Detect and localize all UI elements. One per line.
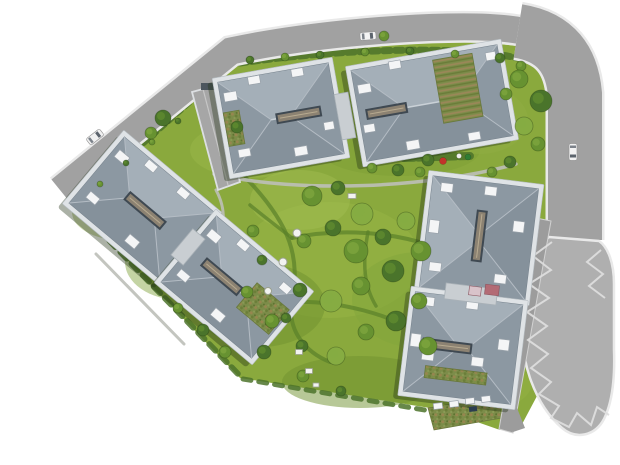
- tree-highlight: [323, 293, 334, 304]
- tree-highlight: [243, 288, 249, 294]
- tree-highlight: [295, 285, 302, 292]
- entrance-canopy: [468, 286, 481, 296]
- tree: [351, 203, 373, 225]
- tree: [197, 324, 209, 336]
- roof-terrace-box: [494, 274, 507, 284]
- ground-terrace: [465, 397, 475, 404]
- tree-highlight: [354, 279, 363, 288]
- car-windshield: [570, 155, 576, 158]
- ground-terrace: [433, 402, 443, 409]
- tree-highlight: [368, 164, 373, 169]
- tree: [415, 167, 425, 177]
- ground-terrace: [449, 400, 459, 407]
- roof-terrace-box: [484, 186, 497, 196]
- tree-highlight: [362, 49, 366, 53]
- tree-highlight: [247, 57, 251, 61]
- tree: [123, 160, 129, 166]
- roof-terrace-box: [471, 357, 484, 367]
- tree: [367, 163, 377, 173]
- tree-highlight: [124, 161, 127, 164]
- tree: [241, 286, 253, 298]
- tree-highlight: [512, 72, 521, 81]
- tree-highlight: [496, 54, 501, 59]
- tree-highlight: [533, 139, 540, 146]
- building-A1: [212, 57, 350, 179]
- roof-terrace-box: [388, 60, 401, 70]
- roof-terrace-box: [429, 262, 442, 272]
- accent-dot: [440, 158, 447, 165]
- tree: [392, 164, 404, 176]
- tree: [531, 137, 545, 151]
- tree-highlight: [305, 189, 315, 199]
- tree-highlight: [424, 156, 430, 162]
- tree: [336, 386, 346, 396]
- garden-furniture: [296, 350, 303, 355]
- tree: [145, 127, 157, 139]
- tree-highlight: [517, 119, 526, 128]
- tree-highlight: [221, 348, 227, 354]
- tree-highlight: [282, 54, 286, 58]
- site-plan-image: [0, 0, 620, 465]
- tree: [173, 303, 183, 313]
- tree-highlight: [394, 166, 400, 172]
- tree-highlight: [267, 316, 274, 323]
- site-plan-canvas: [0, 0, 620, 465]
- tree-highlight: [452, 51, 456, 55]
- tree-highlight: [416, 168, 421, 173]
- roof-terrace-box: [440, 183, 453, 193]
- tree: [515, 117, 533, 135]
- car-rear-window: [362, 33, 365, 39]
- tree: [361, 48, 369, 56]
- tree-highlight: [380, 32, 385, 37]
- tree: [325, 220, 341, 236]
- tree: [344, 239, 368, 263]
- building-C1: [414, 170, 544, 305]
- garden-furniture: [313, 383, 319, 387]
- tree-highlight: [147, 129, 153, 135]
- roof-terrace-box: [513, 221, 525, 233]
- car: [569, 144, 577, 161]
- tree-highlight: [317, 52, 321, 56]
- roof-terrace-box: [357, 83, 371, 94]
- tree-highlight: [299, 372, 305, 378]
- roof-terrace-box: [247, 75, 260, 85]
- tree-highlight: [407, 48, 411, 52]
- tree: [516, 61, 526, 71]
- tree: [451, 50, 459, 58]
- tree: [495, 53, 505, 63]
- tree: [406, 47, 414, 55]
- patio-umbrella: [293, 229, 301, 237]
- tree: [320, 290, 342, 312]
- tree-highlight: [354, 206, 365, 217]
- tree: [358, 324, 374, 340]
- tree-highlight: [502, 90, 508, 96]
- tree: [397, 212, 415, 230]
- tree-highlight: [533, 93, 544, 104]
- roof-terrace-box: [468, 131, 481, 141]
- tree: [149, 139, 155, 145]
- tree: [530, 90, 552, 112]
- tree-highlight: [414, 244, 424, 254]
- patio-umbrella: [265, 288, 272, 295]
- tree: [281, 53, 289, 61]
- tree: [422, 154, 434, 166]
- tree: [231, 121, 243, 133]
- tree: [327, 347, 345, 365]
- tree-highlight: [413, 295, 421, 303]
- tree-highlight: [176, 119, 179, 122]
- tree-highlight: [199, 326, 205, 332]
- tree: [331, 181, 345, 195]
- tree-highlight: [259, 347, 266, 354]
- tree: [247, 225, 259, 237]
- car-windshield: [370, 33, 374, 39]
- roof-terrace-box: [223, 91, 237, 102]
- tree: [219, 346, 231, 358]
- tree: [487, 167, 497, 177]
- tree-highlight: [174, 304, 179, 309]
- tree-highlight: [157, 112, 165, 120]
- tree: [375, 229, 391, 245]
- tree-highlight: [488, 168, 493, 173]
- tree-highlight: [298, 342, 304, 348]
- tree: [293, 283, 307, 297]
- car-rear-window: [570, 146, 576, 149]
- roof-terrace-box: [363, 123, 375, 133]
- tree: [97, 181, 103, 187]
- tree: [175, 118, 181, 124]
- tree: [281, 313, 291, 323]
- tree: [246, 56, 254, 64]
- tree-highlight: [517, 62, 522, 67]
- tree-highlight: [258, 256, 263, 261]
- tree-highlight: [98, 182, 101, 185]
- tree-highlight: [329, 349, 338, 358]
- roof-terrace-box: [238, 148, 251, 158]
- tree: [382, 260, 404, 282]
- garden-furniture: [306, 369, 313, 374]
- tree: [411, 241, 431, 261]
- tree: [302, 186, 322, 206]
- tree-highlight: [333, 183, 340, 190]
- tree: [500, 88, 512, 100]
- roof-terrace-box: [406, 139, 420, 150]
- car: [360, 31, 377, 40]
- tree-highlight: [233, 123, 239, 129]
- garden-furniture: [348, 194, 356, 199]
- tree: [386, 311, 406, 331]
- tree-highlight: [389, 314, 399, 324]
- accent-dot: [457, 154, 462, 159]
- ground-terrace: [481, 395, 491, 402]
- roof-terrace-box: [485, 51, 496, 61]
- tree-highlight: [506, 158, 512, 164]
- tree-highlight: [421, 339, 430, 348]
- tree: [504, 156, 516, 168]
- roof-terrace-box: [294, 145, 308, 156]
- tree: [411, 293, 427, 309]
- tree-highlight: [299, 236, 306, 243]
- tree-highlight: [377, 231, 385, 239]
- tree-highlight: [337, 387, 342, 392]
- roof-terrace-box: [291, 67, 304, 77]
- accent-dot: [465, 154, 471, 160]
- tree-highlight: [282, 314, 287, 319]
- patio-umbrella: [279, 258, 287, 266]
- tree: [316, 51, 324, 59]
- tree: [379, 31, 389, 41]
- tree: [155, 110, 171, 126]
- roof-terrace-box: [498, 339, 510, 351]
- tree-highlight: [385, 263, 396, 274]
- tree: [419, 337, 437, 355]
- tree: [265, 314, 279, 328]
- tree-highlight: [347, 242, 359, 254]
- dark-terrace: [469, 406, 478, 412]
- tree: [510, 70, 528, 88]
- tree-highlight: [249, 227, 255, 233]
- tree: [257, 255, 267, 265]
- tree-highlight: [360, 326, 368, 334]
- roof-terrace-box: [323, 121, 334, 131]
- roof-terrace-box: [428, 219, 440, 233]
- tree-highlight: [150, 140, 153, 143]
- tree: [257, 345, 271, 359]
- tree: [352, 277, 370, 295]
- tree-highlight: [399, 214, 408, 223]
- tree-highlight: [327, 222, 335, 230]
- entrance-canopy: [484, 284, 499, 296]
